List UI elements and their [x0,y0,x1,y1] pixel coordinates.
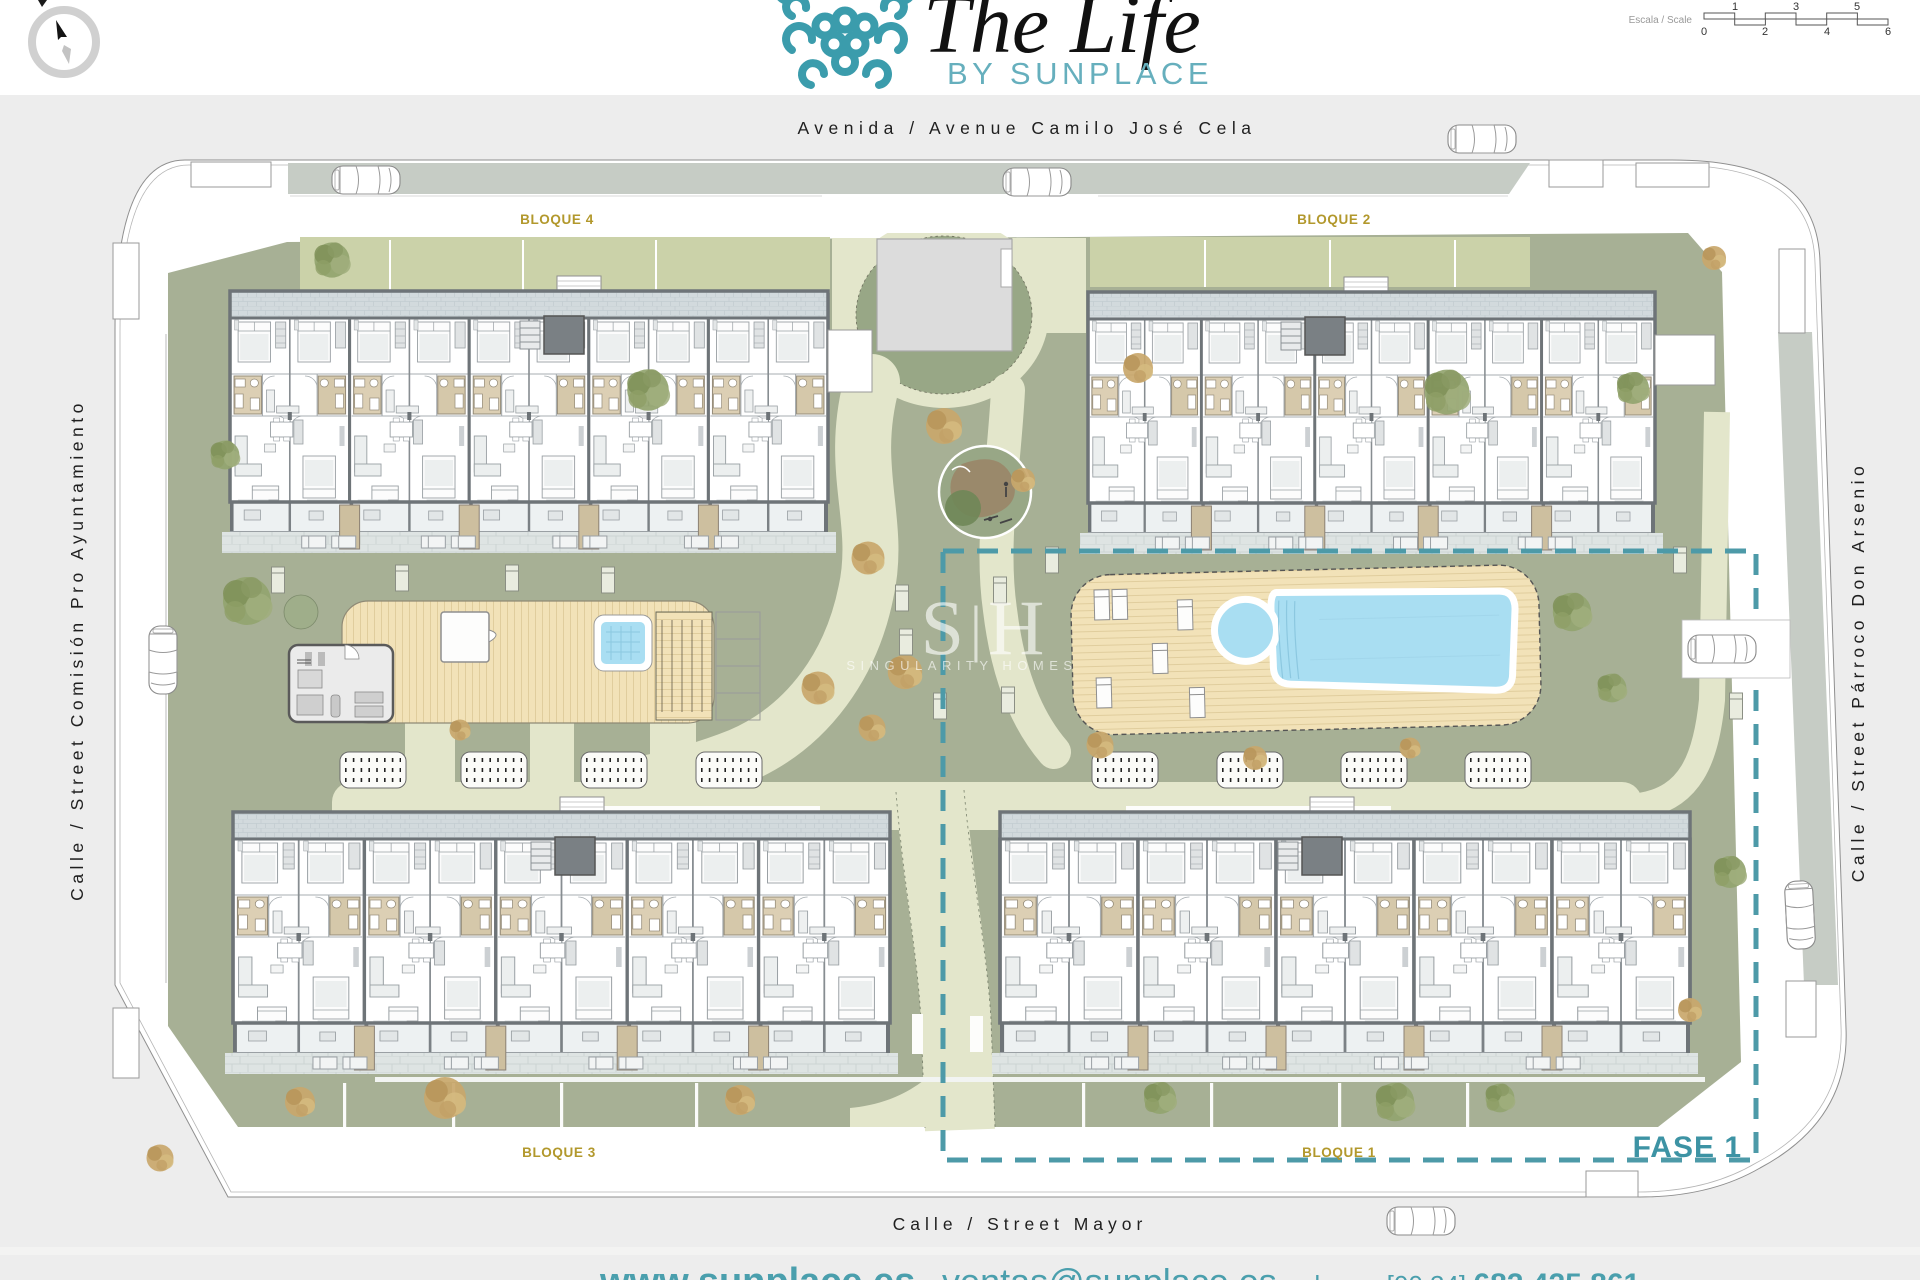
svg-text:Escala / Scale: Escala / Scale [1629,15,1693,26]
svg-text:Avenida / Avenue Camilo José: Avenida / Avenue Camilo José Cela [797,118,1256,138]
svg-text:BLOQUE 3: BLOQUE 3 [522,1145,596,1160]
svg-text:Calle / Street Comisión Pro: Calle / Street Comisión Pro Ayuntamiento [67,399,87,901]
svg-text:5: 5 [1854,1,1860,13]
svg-text:4: 4 [1824,26,1830,38]
svg-text:BLOQUE 2: BLOQUE 2 [1297,212,1371,227]
svg-text:BY SUNPLACE: BY SUNPLACE [947,56,1213,91]
svg-text:Calle / Street Mayor: Calle / Street Mayor [893,1214,1148,1234]
svg-text:BLOQUE 4: BLOQUE 4 [520,212,594,227]
svg-text:3: 3 [1793,1,1799,13]
svg-text:BLOQUE 1: BLOQUE 1 [1302,1145,1376,1160]
svg-text:2: 2 [1762,26,1768,38]
svg-text:|: | [970,595,982,663]
svg-text:1: 1 [1732,1,1738,13]
svg-text:SINGULARITY HOMES: SINGULARITY HOMES [846,658,1077,673]
svg-text:Calle / Street Párroco Don: Calle / Street Párroco Don Arsenio [1848,462,1868,883]
svg-text:0: 0 [1701,26,1707,38]
svg-text:FASE 1: FASE 1 [1633,1131,1742,1164]
svg-text:6: 6 [1885,26,1891,38]
